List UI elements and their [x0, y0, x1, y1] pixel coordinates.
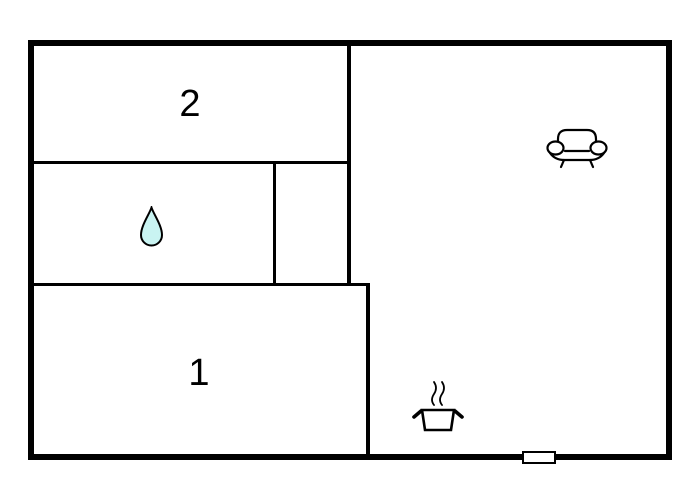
sofa-armrest-right	[591, 142, 607, 155]
wall-below-room2	[28, 161, 351, 164]
room-label-1: 1	[169, 349, 229, 397]
wall-room1-right	[366, 283, 370, 460]
pot-handle-left	[414, 411, 421, 417]
sofa-leg-right	[590, 160, 593, 167]
water-drop-shape	[141, 208, 162, 246]
sofa-icon	[546, 127, 608, 169]
floor-plan: 2 1	[0, 0, 700, 500]
water-drop-icon	[139, 206, 164, 248]
sofa-leg-left	[561, 160, 564, 167]
wall-main-vertical	[347, 40, 351, 286]
pot-body	[422, 410, 454, 430]
sofa-armrest-left	[548, 142, 564, 155]
pot-handle-right	[455, 411, 462, 417]
room-label-2: 2	[160, 80, 220, 128]
wall-small-room-left	[273, 161, 276, 286]
steam-line-left	[432, 382, 436, 405]
cooking-pot-icon	[412, 379, 464, 432]
window-marker	[522, 451, 556, 464]
wall-above-room1	[28, 283, 370, 286]
steam-line-right	[440, 382, 444, 405]
